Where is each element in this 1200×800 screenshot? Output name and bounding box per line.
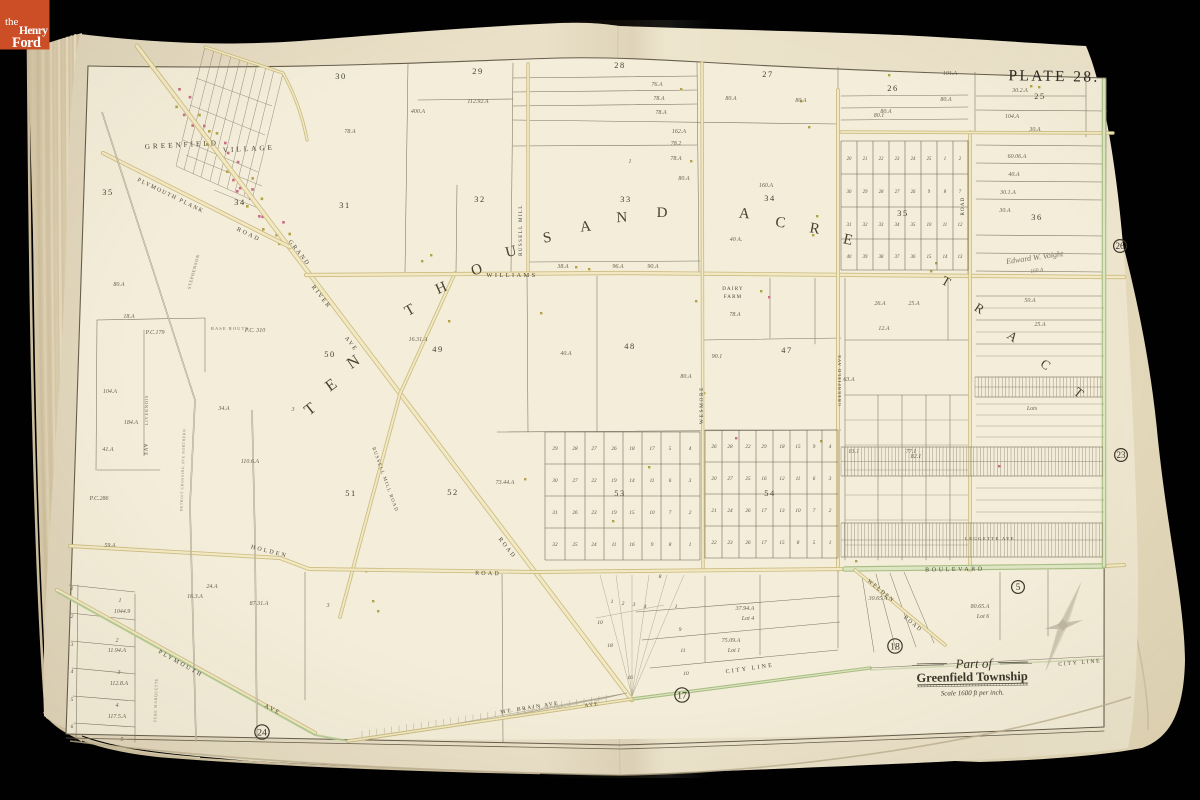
svg-text:Ford: Ford: [12, 35, 41, 51]
svg-text:the: the: [5, 16, 19, 28]
